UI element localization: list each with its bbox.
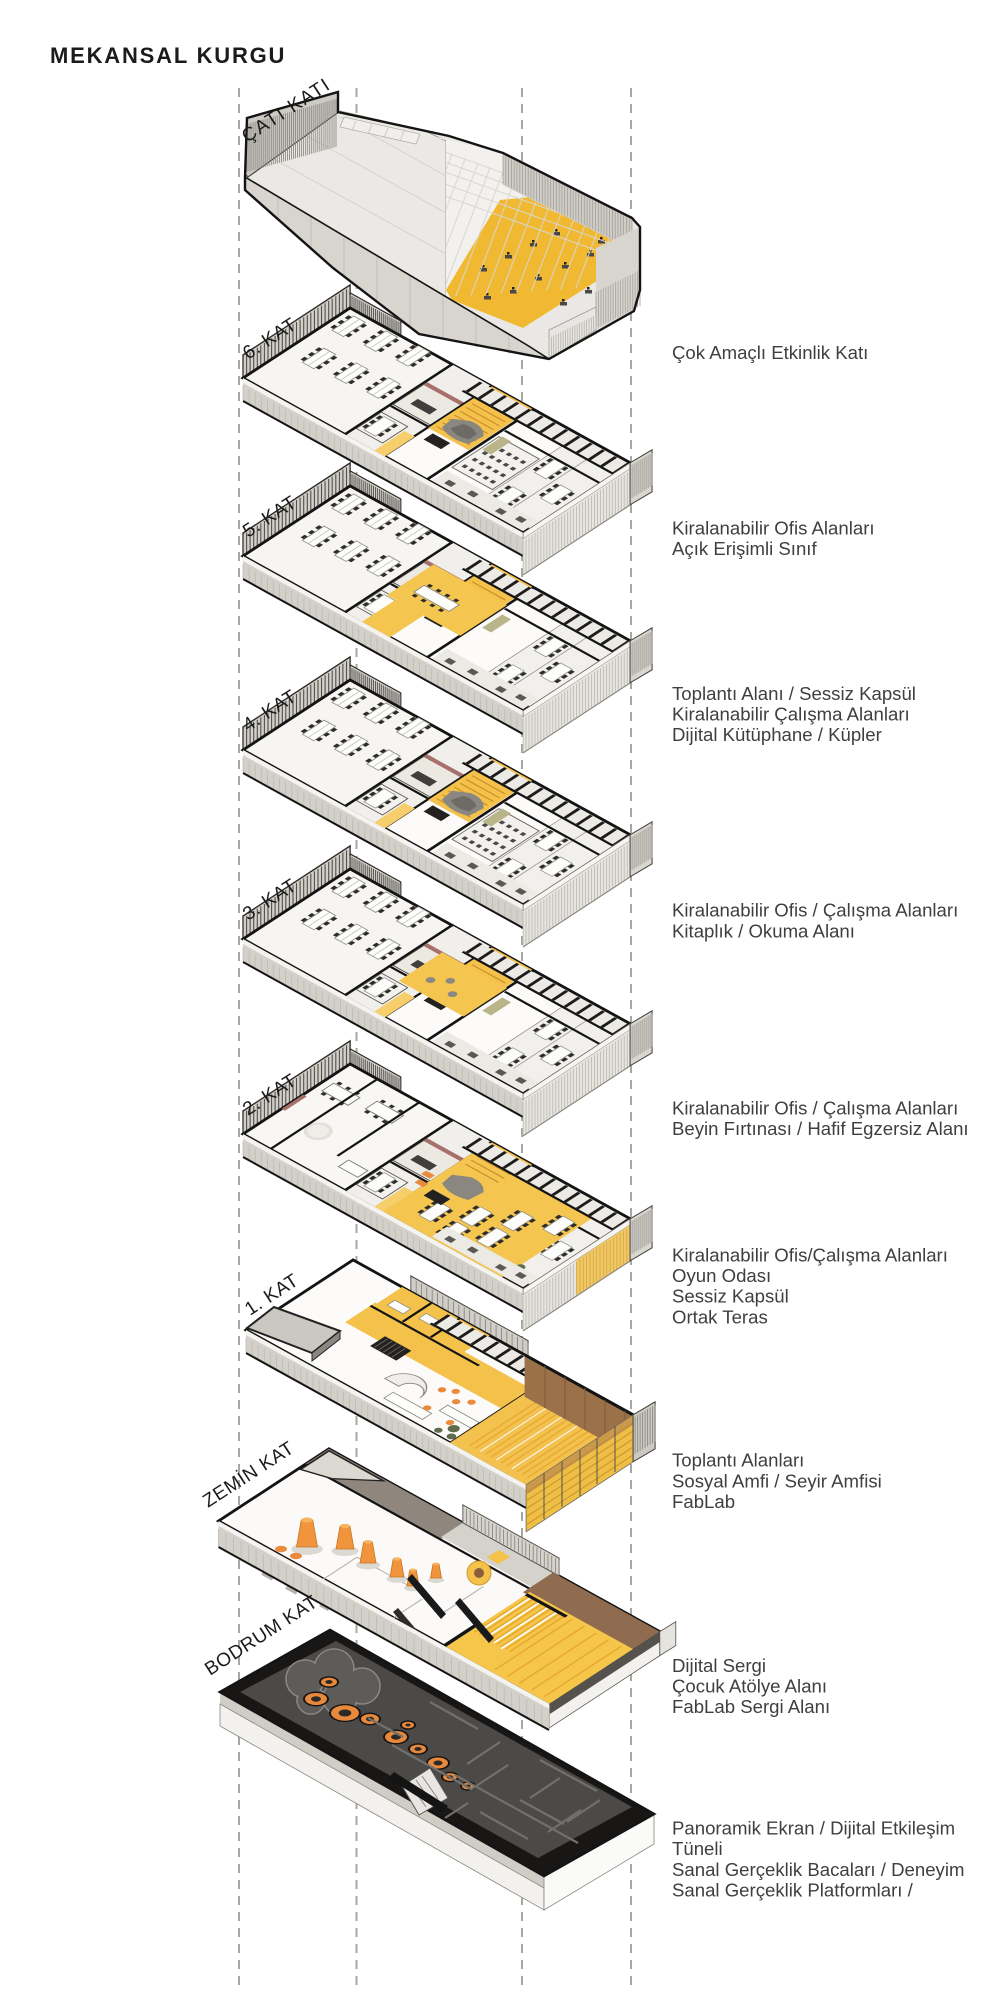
svg-text:Tüneli: Tüneli: [672, 1838, 723, 1859]
svg-text:Kiralanabilir Ofis / Çalışma A: Kiralanabilir Ofis / Çalışma Alanları: [672, 1098, 958, 1119]
svg-text:Kiralanabilir Ofis Alanları: Kiralanabilir Ofis Alanları: [672, 518, 875, 539]
svg-text:Oyun Odası: Oyun Odası: [672, 1265, 771, 1286]
svg-text:Toplantı Alanı / Sessiz Kapsül: Toplantı Alanı / Sessiz Kapsül: [672, 683, 916, 704]
svg-text:Açık Erişimli Sınıf: Açık Erişimli Sınıf: [672, 538, 817, 559]
svg-text:MEKANSAL KURGU: MEKANSAL KURGU: [50, 43, 286, 68]
svg-text:Sosyal Amfi / Seyir Amfisi: Sosyal Amfi / Seyir Amfisi: [672, 1470, 882, 1491]
svg-text:Sessiz Kapsül: Sessiz Kapsül: [672, 1286, 789, 1307]
svg-text:Kitaplık / Okuma Alanı: Kitaplık / Okuma Alanı: [672, 920, 855, 941]
svg-text:Ortak Teras: Ortak Teras: [672, 1306, 768, 1327]
svg-text:Toplantı Alanları: Toplantı Alanları: [672, 1450, 804, 1471]
svg-text:Dijital Kütüphane / Küpler: Dijital Kütüphane / Küpler: [672, 724, 882, 745]
svg-text:Sanal Gerçeklik Platformları /: Sanal Gerçeklik Platformları /: [672, 1879, 914, 1900]
svg-text:Dijital Sergi: Dijital Sergi: [672, 1655, 766, 1676]
svg-text:Kiralanabilir Çalışma Alanları: Kiralanabilir Çalışma Alanları: [672, 704, 910, 725]
svg-text:Kiralanabilir Ofis / Çalışma A: Kiralanabilir Ofis / Çalışma Alanları: [672, 900, 958, 921]
svg-text:Kiralanabilir Ofis/Çalışma Ala: Kiralanabilir Ofis/Çalışma Alanları: [672, 1245, 948, 1266]
svg-text:Sanal Gerçeklik Bacaları / Den: Sanal Gerçeklik Bacaları / Deneyim: [672, 1859, 964, 1880]
svg-text:FabLab: FabLab: [672, 1491, 735, 1512]
svg-text:Çocuk Atölye Alanı: Çocuk Atölye Alanı: [672, 1676, 827, 1697]
svg-text:FabLab Sergi Alanı: FabLab Sergi Alanı: [672, 1696, 830, 1717]
svg-text:Çok Amaçlı Etkinlik Katı: Çok Amaçlı Etkinlik Katı: [672, 342, 868, 363]
svg-text:Panoramik Ekran / Dijital Etki: Panoramik Ekran / Dijital Etkileşim: [672, 1818, 955, 1839]
svg-text:Beyin Fırtınası / Hafif Egzers: Beyin Fırtınası / Hafif Egzersiz Alanı: [672, 1118, 969, 1139]
